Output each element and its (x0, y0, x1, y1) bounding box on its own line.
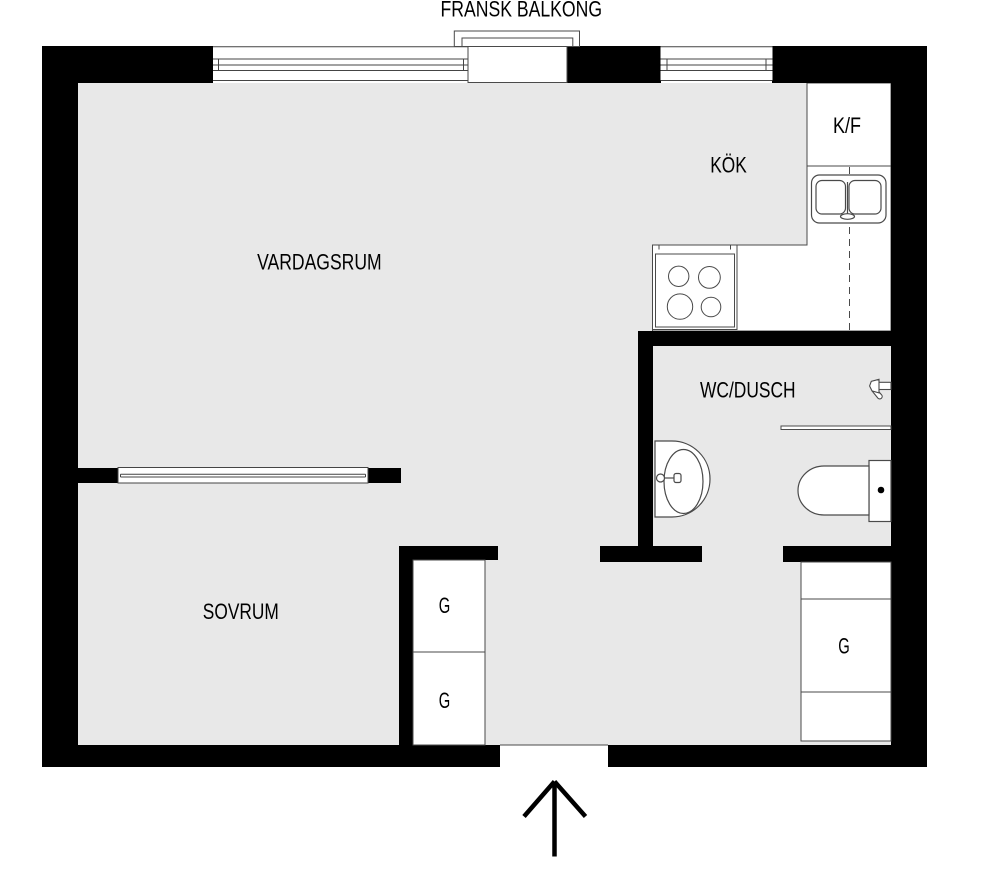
svg-text:K/F: K/F (833, 113, 861, 138)
svg-text:WC/DUSCH: WC/DUSCH (700, 378, 796, 403)
svg-text:SOVRUM: SOVRUM (203, 599, 279, 624)
svg-text:KÖK: KÖK (710, 153, 747, 178)
svg-text:G: G (439, 688, 451, 713)
svg-text:VARDAGSRUM: VARDAGSRUM (257, 250, 382, 275)
svg-text:G: G (439, 593, 451, 618)
svg-text:G: G (838, 634, 850, 659)
svg-text:FRANSK BALKONG: FRANSK BALKONG (441, 0, 603, 22)
